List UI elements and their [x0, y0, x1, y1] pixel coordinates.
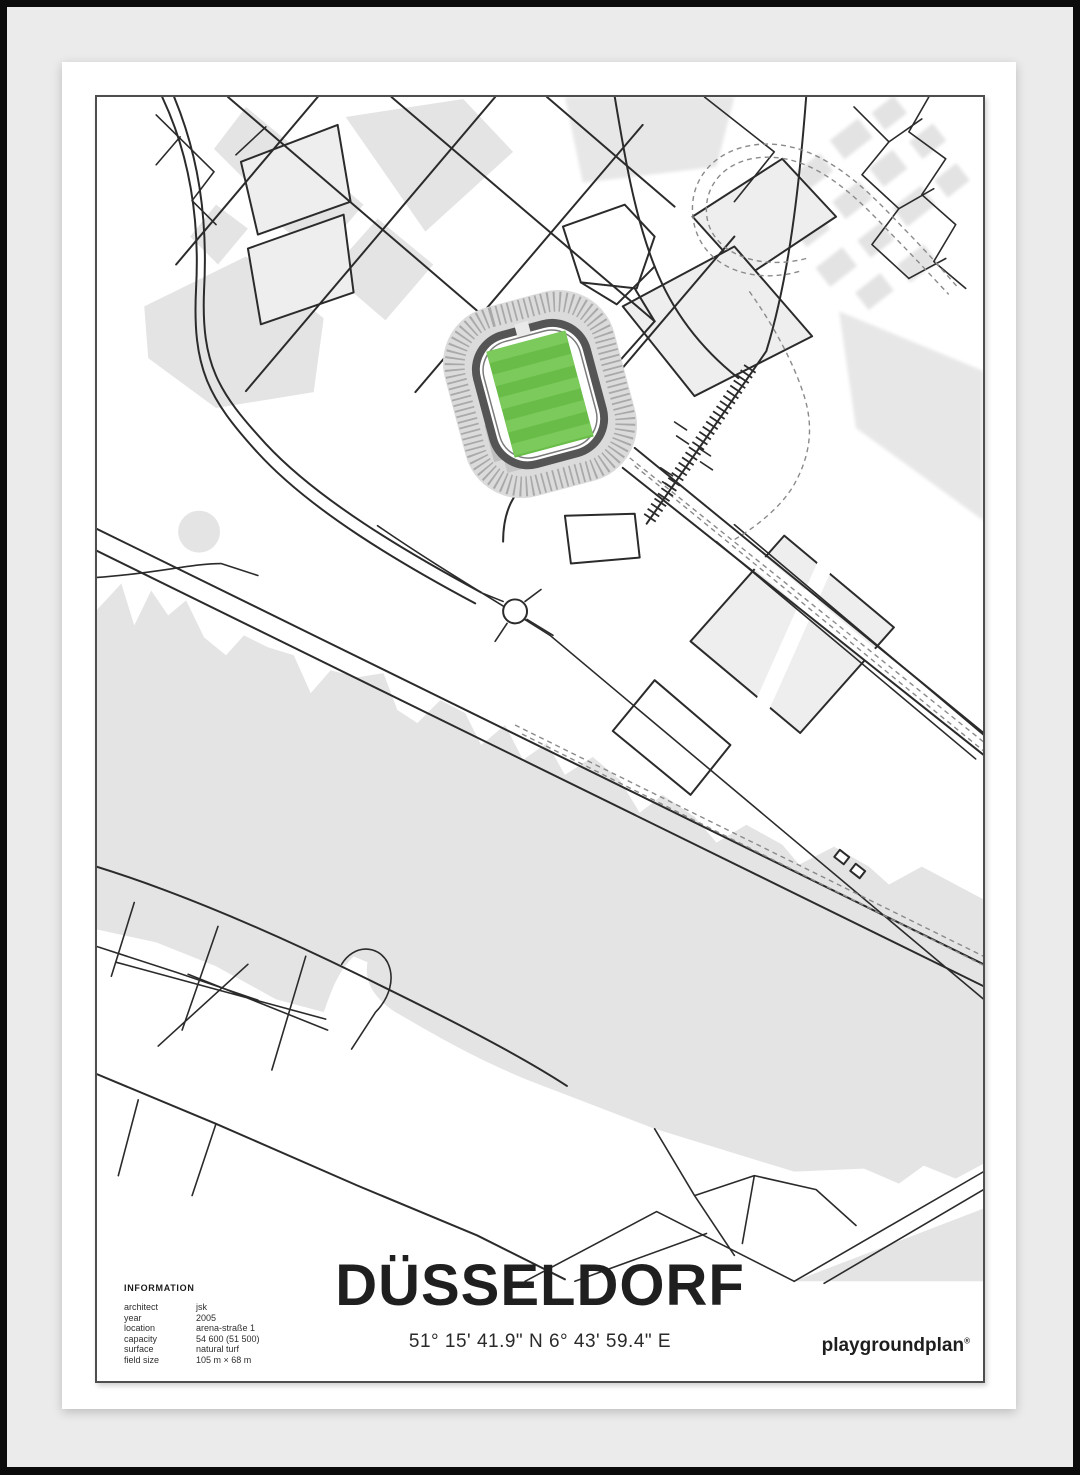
- registered-mark: ®: [964, 1337, 970, 1346]
- stadium-map-svg: [97, 97, 983, 1381]
- brand-text: playgroundplan: [822, 1335, 965, 1356]
- pond: [178, 511, 220, 553]
- info-row-field-size: field size 105 m × 68 m: [124, 1355, 354, 1366]
- poster-frame: INFORMATION architect jsk year 2005 loca…: [0, 0, 1080, 1475]
- stadium-map: INFORMATION architect jsk year 2005 loca…: [95, 95, 985, 1383]
- roundabout: [503, 599, 527, 623]
- info-label: field size: [124, 1355, 196, 1366]
- poster-title: DÜSSELDORF: [97, 1257, 983, 1315]
- brand-logo: playgroundplan®: [822, 1335, 970, 1357]
- stadium: [430, 277, 650, 511]
- info-value: 105 m × 68 m: [196, 1355, 354, 1366]
